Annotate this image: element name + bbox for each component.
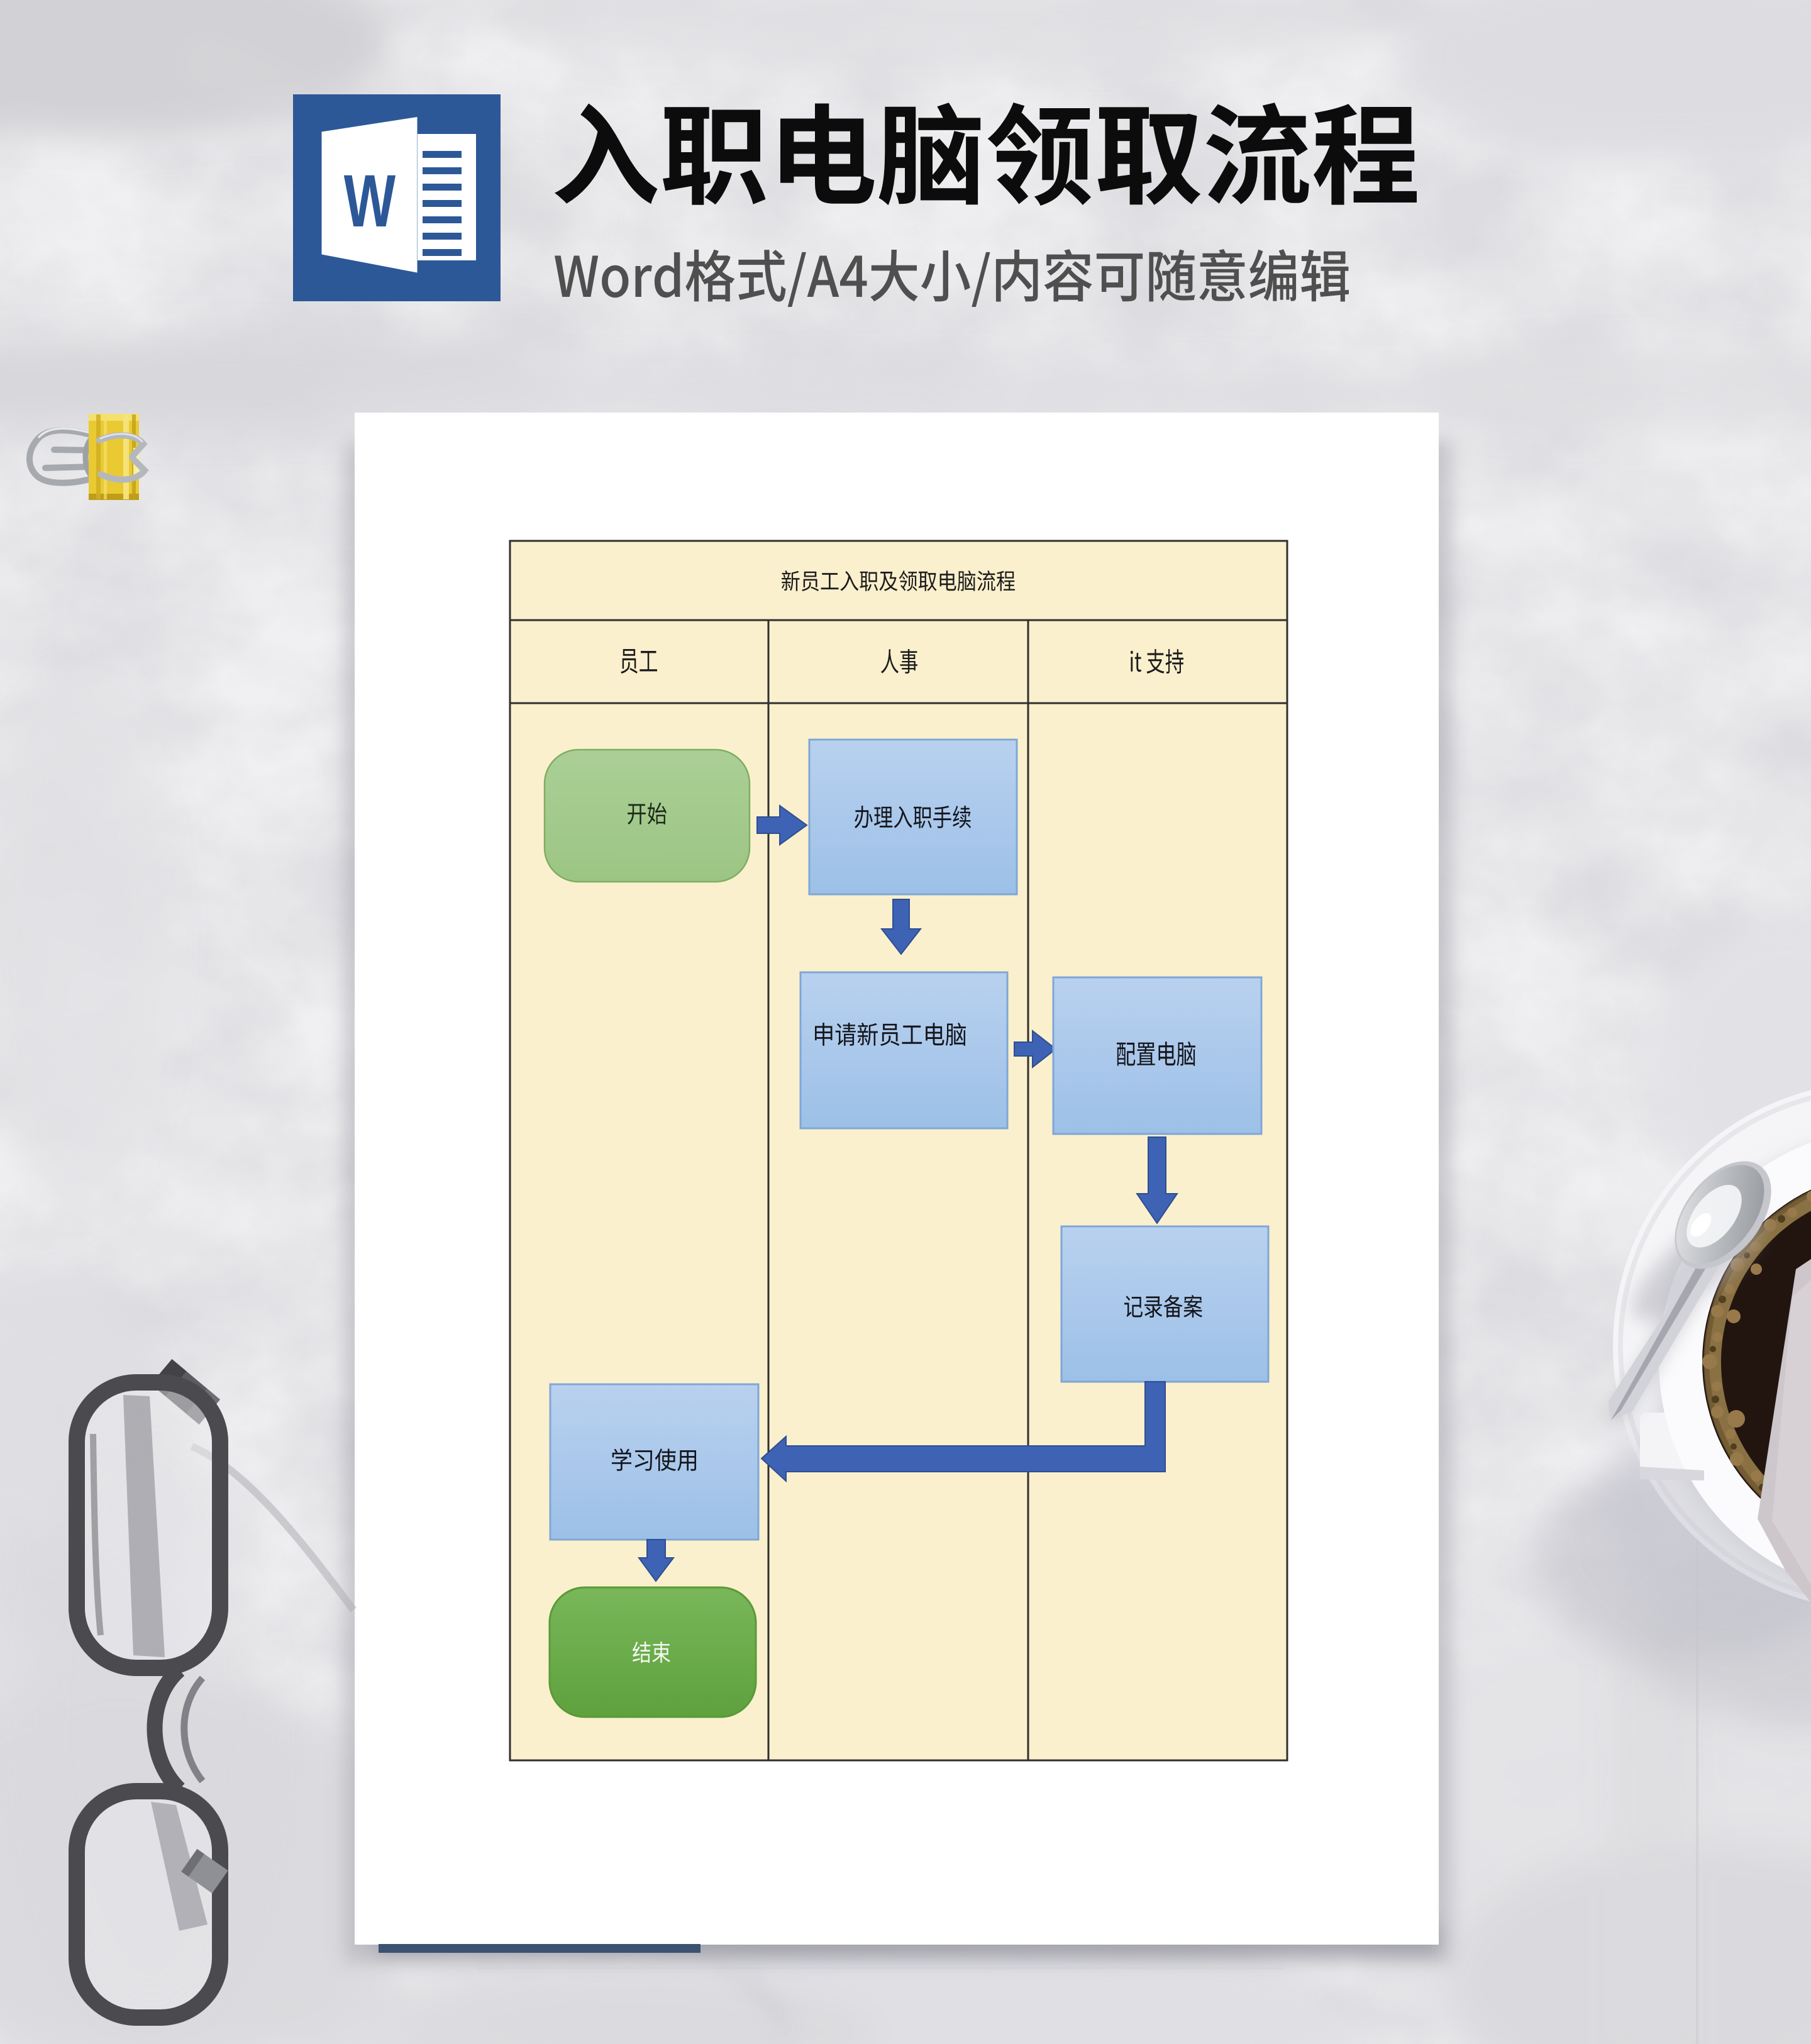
svg-text:W: W: [344, 159, 396, 242]
